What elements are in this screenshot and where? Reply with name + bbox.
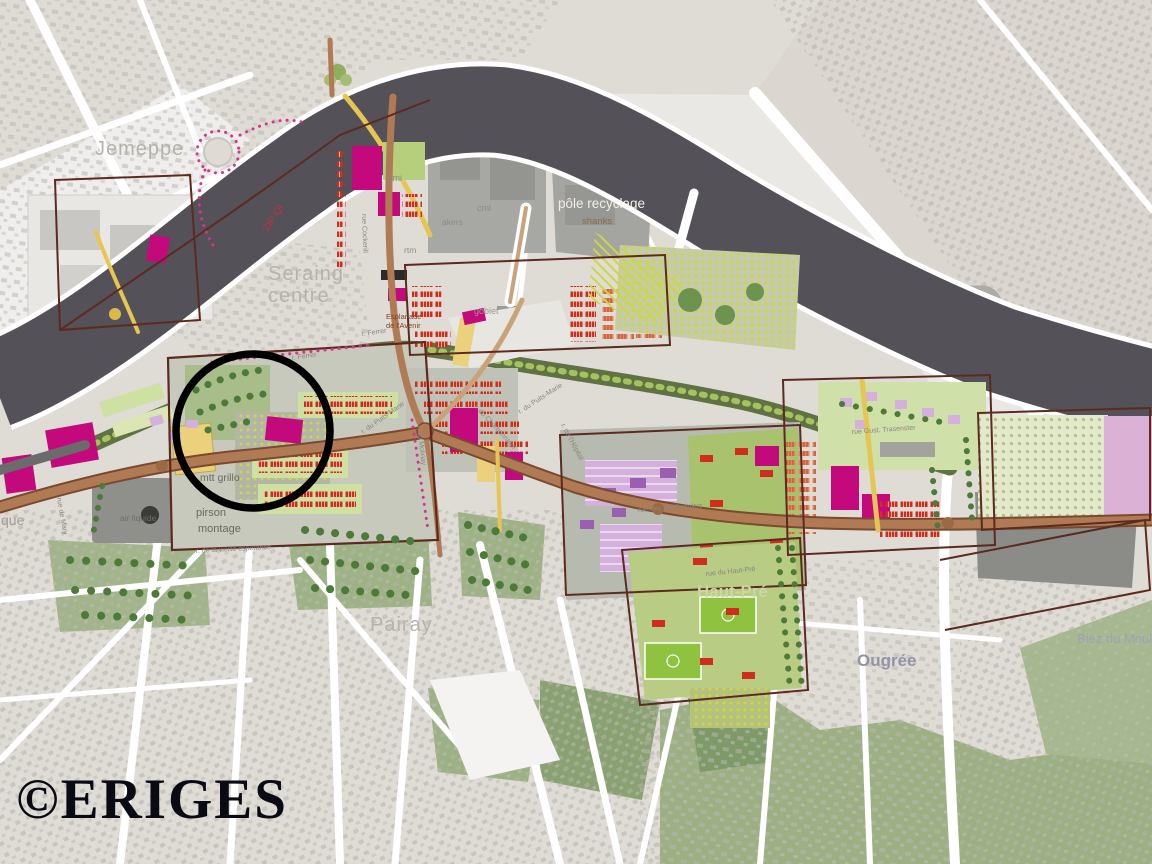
site-label-cmi-b: cmi [477,203,491,213]
street-label-cockerill: rue Cockerill [360,214,368,254]
district-label-seraing-line2: centre [268,285,330,307]
site-label-edge-partial: que [1,512,25,528]
site-label-gobiet: gobiet [474,306,499,316]
map-canvas: Jemeppe Seraing centre Pairay Haut-Pré O… [0,0,1152,864]
district-label-seraing-line1: Seraing [268,263,344,285]
site-label-pirson-line2: montage [198,523,241,535]
map-viewport: Jemeppe Seraing centre Pairay Haut-Pré O… [0,0,1152,864]
watermark-text: ©ERIGES [16,768,288,831]
site-label-pole-recyclage: pôle recyclage [558,196,645,211]
district-label-jemeppe: Jemeppe [95,138,184,160]
district-label-ougree: Ougrée [857,651,917,670]
site-label-rtm: rtm [404,245,416,255]
site-label-cmi-a: cmi [388,173,402,183]
site-label-mtt-grillo: mtt grillo [200,472,240,484]
district-label-biez-du-moulin: Biez du Moulin [1077,631,1152,646]
district-label-pairay: Pairay [370,614,433,636]
site-label-akers: akers [442,217,463,227]
site-label-air-liquide: air liquide [120,513,157,523]
site-label-esplanade-line1: Esplanade [386,312,421,321]
district-label-haut-pre: Haut-Pré [697,582,768,601]
site-label-pirson-line1: pirson [196,507,226,519]
site-label-shanks: shanks [582,216,612,227]
site-label-esplanade-line2: de l'Avenir [386,321,421,330]
